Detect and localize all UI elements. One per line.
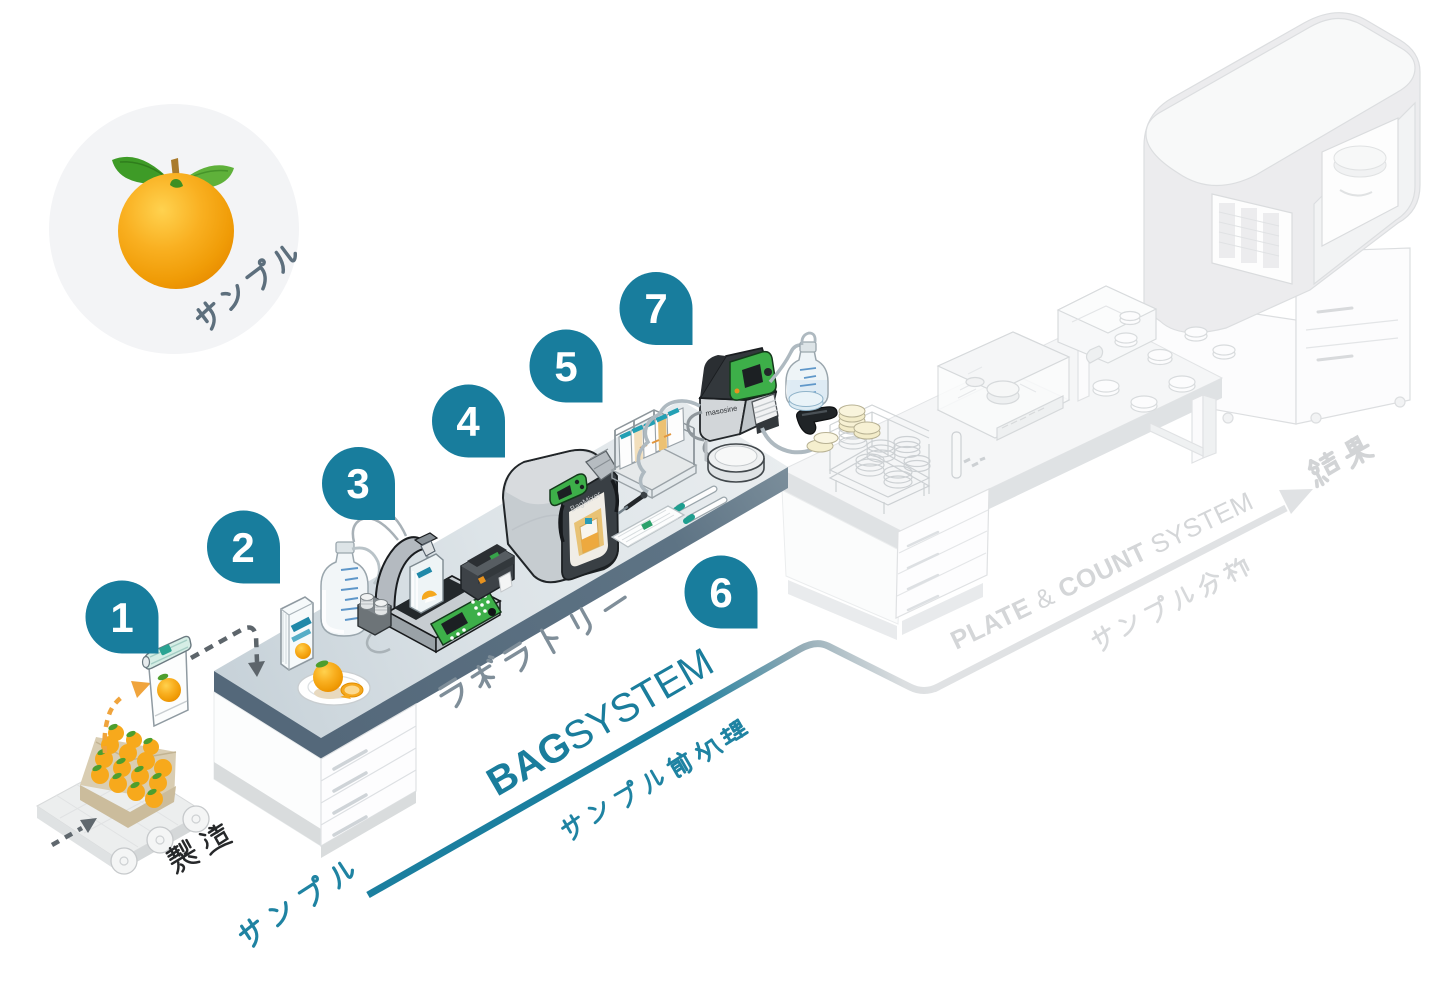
- svg-text:5: 5: [554, 343, 577, 390]
- svg-text:7: 7: [644, 285, 667, 332]
- svg-text:6: 6: [709, 569, 732, 616]
- svg-text:2: 2: [231, 524, 254, 571]
- svg-text:3: 3: [346, 460, 369, 507]
- svg-text:4: 4: [456, 398, 480, 445]
- svg-text:1: 1: [110, 594, 133, 641]
